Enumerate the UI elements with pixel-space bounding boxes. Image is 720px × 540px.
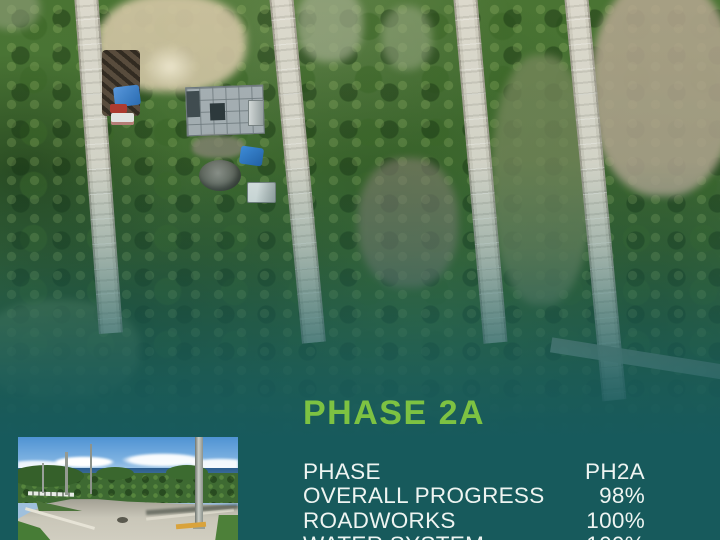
stat-row: PHASE PH2A [303,460,645,484]
stat-row: OVERALL PROGRESS 98% [303,484,645,508]
progress-poster: PHASE 2A PHASE PH2A OVERALL PROGRESS 98%… [0,0,720,540]
stat-row: WATER SYSTEM 100% [303,533,645,540]
utility-pole [90,444,92,494]
manhole-cover [117,517,128,523]
stat-row: ROADWORKS 100% [303,509,645,533]
stat-value: 98% [599,484,645,508]
phase-title: PHASE 2A [303,396,485,430]
utility-pole [65,452,68,495]
street-photo-inset [18,437,238,540]
stats-table: PHASE PH2A OVERALL PROGRESS 98% ROADWORK… [303,460,645,540]
stat-label: PHASE [303,460,381,484]
stat-label: OVERALL PROGRESS [303,484,545,508]
stat-label: WATER SYSTEM [303,533,484,540]
shrub-clump [96,467,134,480]
stat-value: 100% [586,533,645,540]
stat-label: ROADWORKS [303,509,456,533]
utility-pole [195,437,203,527]
concrete-road-fork [18,497,238,540]
stat-value: PH2A [585,460,645,484]
utility-pole [42,463,44,493]
stat-value: 100% [586,509,645,533]
